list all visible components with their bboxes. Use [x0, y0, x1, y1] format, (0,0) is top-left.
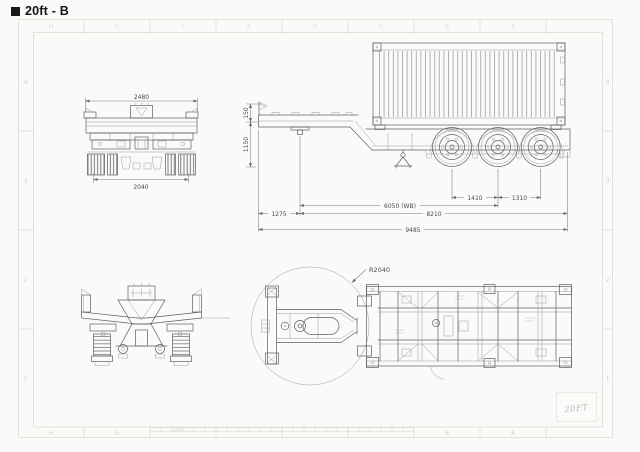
zone-row-label: 1 — [24, 375, 28, 382]
scale-bar — [150, 428, 414, 432]
revision-box: 20FT — [557, 393, 597, 422]
zone-row-label: 2 — [606, 277, 610, 284]
drawing-canvas: 4 3 2 1 4 3 2 1 H G F E D C B A H G B A — [0, 0, 640, 452]
rear-view-drawing — [84, 103, 198, 176]
zone-col-label: D — [313, 24, 318, 31]
svg-text:1310: 1310 — [512, 195, 527, 202]
swing-radius-callout: R2040 — [352, 266, 390, 283]
svg-text:2040: 2040 — [133, 184, 148, 191]
drawing-title: 20ft - B — [11, 4, 69, 18]
zone-col-label: G — [115, 24, 120, 31]
svg-text:150: 150 — [243, 107, 250, 119]
side-view: 150 1150 1410 1310 6050 (WB) 1275 — [243, 43, 570, 234]
svg-text:9485: 9485 — [405, 227, 420, 234]
swing-radius-circle — [251, 267, 369, 385]
svg-text:8210: 8210 — [426, 211, 441, 218]
wheel — [521, 128, 560, 167]
wheel — [479, 128, 518, 167]
container-box — [373, 43, 565, 125]
zone-row-label: 3 — [24, 178, 28, 185]
plan-view: R2040 — [251, 266, 572, 385]
front-view — [82, 283, 231, 366]
zone-col-label: F — [181, 24, 185, 31]
svg-text:6050 (WB): 6050 (WB) — [384, 203, 416, 210]
title-bullet-icon — [11, 7, 20, 16]
zone-row-label: 3 — [606, 178, 610, 185]
zone-row-label: 2 — [24, 277, 28, 284]
zone-col-label: H — [49, 24, 54, 31]
rear-view: 2480 — [84, 93, 198, 192]
swing-radius-label: R2040 — [369, 266, 390, 274]
svg-text:1150: 1150 — [243, 137, 250, 152]
zone-row-label: 1 — [606, 375, 610, 382]
handwritten-note: 20FT — [563, 402, 589, 414]
front-view-drawing — [82, 283, 231, 366]
zone-col-label: A — [511, 430, 516, 437]
zone-row-label: 4 — [24, 79, 28, 86]
zone-col-label: E — [247, 24, 251, 31]
plan-view-drawing — [262, 285, 572, 380]
zone-col-label: H — [49, 430, 54, 437]
wheel — [433, 128, 472, 167]
svg-text:1410: 1410 — [467, 195, 482, 202]
zone-col-label: C — [379, 24, 383, 31]
zone-col-label: B — [445, 24, 449, 31]
zone-row-label: 4 — [606, 79, 610, 86]
svg-text:2480: 2480 — [134, 94, 149, 101]
drawing-sheet: 4 3 2 1 4 3 2 1 H G F E D C B A H G B A — [0, 0, 640, 452]
zone-col-label: G — [115, 430, 120, 437]
zone-col-label: A — [511, 24, 516, 31]
rear-width-dimension: 2480 — [86, 93, 198, 113]
title-text: 20ft - B — [25, 4, 69, 18]
svg-text:1275: 1275 — [271, 211, 286, 218]
rear-track-dimension: 2040 — [94, 173, 189, 191]
zone-col-label: B — [445, 430, 449, 437]
